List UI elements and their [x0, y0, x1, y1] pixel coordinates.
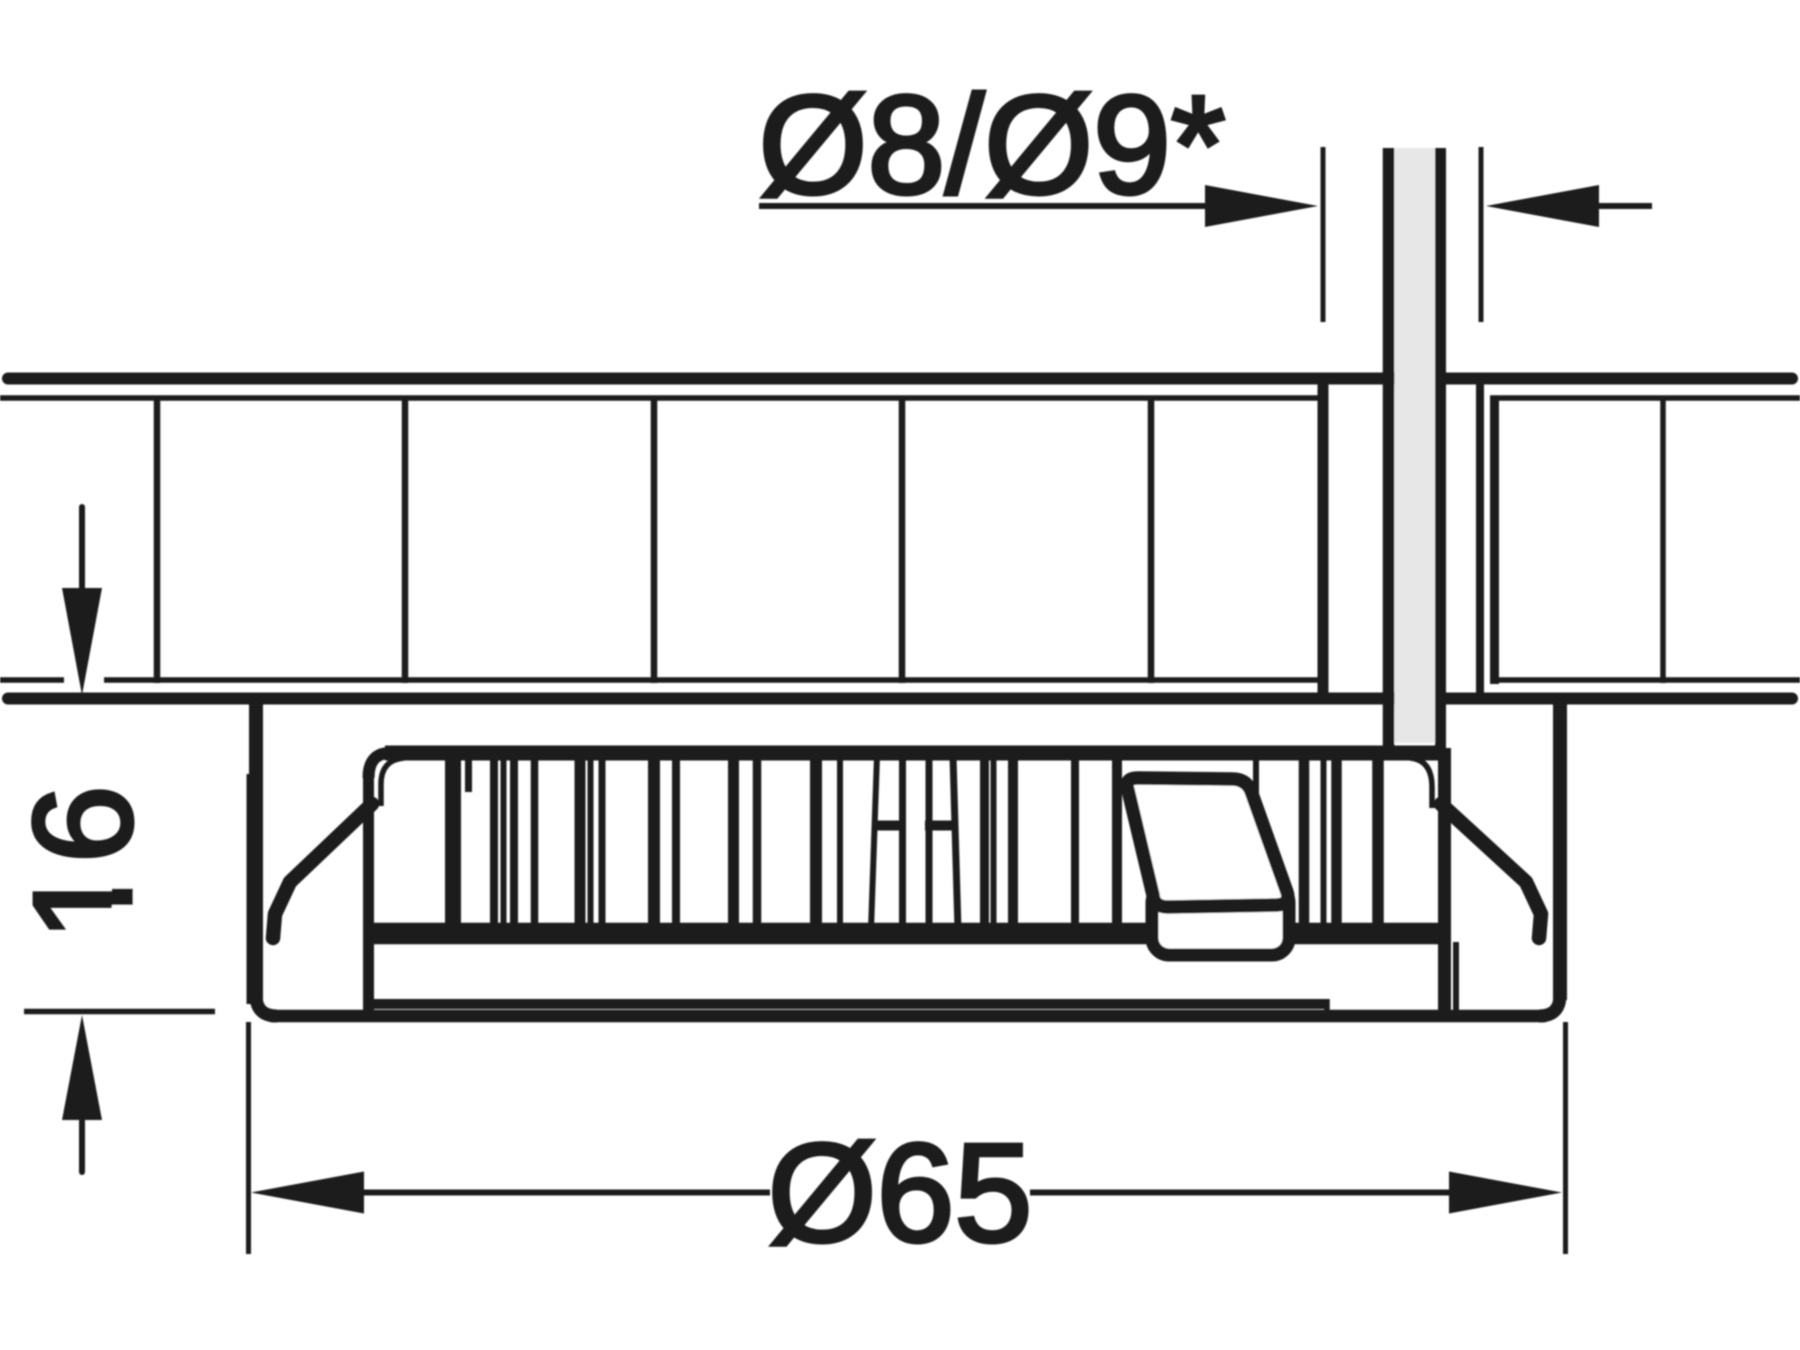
svg-text:Ø8/Ø9*: Ø8/Ø9*	[759, 66, 1226, 223]
svg-text:Ø65: Ø65	[768, 1114, 1033, 1271]
